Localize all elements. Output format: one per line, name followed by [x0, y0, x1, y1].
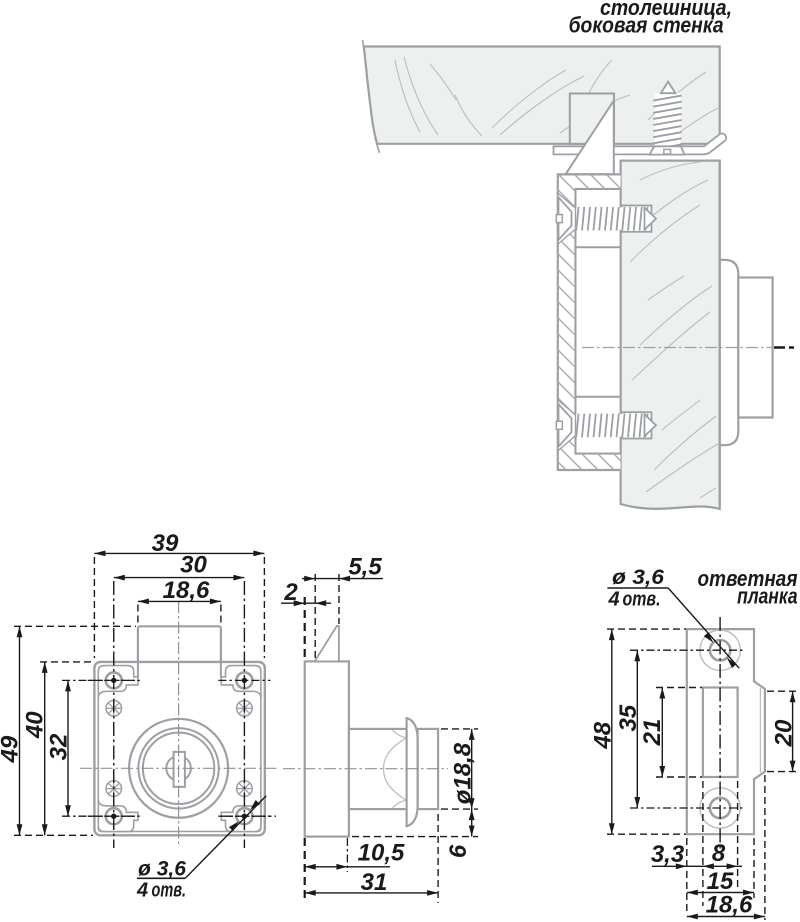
- svg-text:48: 48: [590, 721, 617, 749]
- svg-text:40: 40: [22, 711, 49, 739]
- svg-text:18,6: 18,6: [163, 577, 210, 604]
- svg-text:39: 39: [152, 530, 179, 557]
- svg-text:4: 4: [608, 589, 620, 611]
- svg-text:18,6: 18,6: [706, 892, 753, 919]
- svg-text:2: 2: [283, 579, 298, 606]
- svg-text:35: 35: [615, 704, 642, 731]
- svg-text:6: 6: [445, 844, 472, 858]
- svg-text:21: 21: [639, 719, 666, 747]
- svg-text:31: 31: [361, 869, 388, 896]
- svg-text:49: 49: [0, 735, 24, 763]
- svg-text:отв.: отв.: [623, 589, 661, 611]
- svg-text:32: 32: [46, 733, 73, 760]
- svg-text:3,3: 3,3: [651, 841, 685, 868]
- svg-text:отв.: отв.: [152, 880, 187, 902]
- svg-text:20: 20: [770, 719, 797, 747]
- svg-text:боковая стенка: боковая стенка: [569, 13, 724, 38]
- svg-text:ø18,8: ø18,8: [449, 742, 476, 804]
- svg-text:10,5: 10,5: [358, 840, 405, 867]
- svg-text:4: 4: [136, 880, 148, 902]
- svg-text:30: 30: [180, 552, 207, 579]
- svg-text:5,5: 5,5: [348, 554, 382, 581]
- svg-text:ø 3,6: ø 3,6: [138, 858, 186, 881]
- svg-text:8: 8: [712, 840, 726, 867]
- svg-text:планка: планка: [737, 584, 798, 609]
- svg-text:ø 3,6: ø 3,6: [612, 566, 664, 589]
